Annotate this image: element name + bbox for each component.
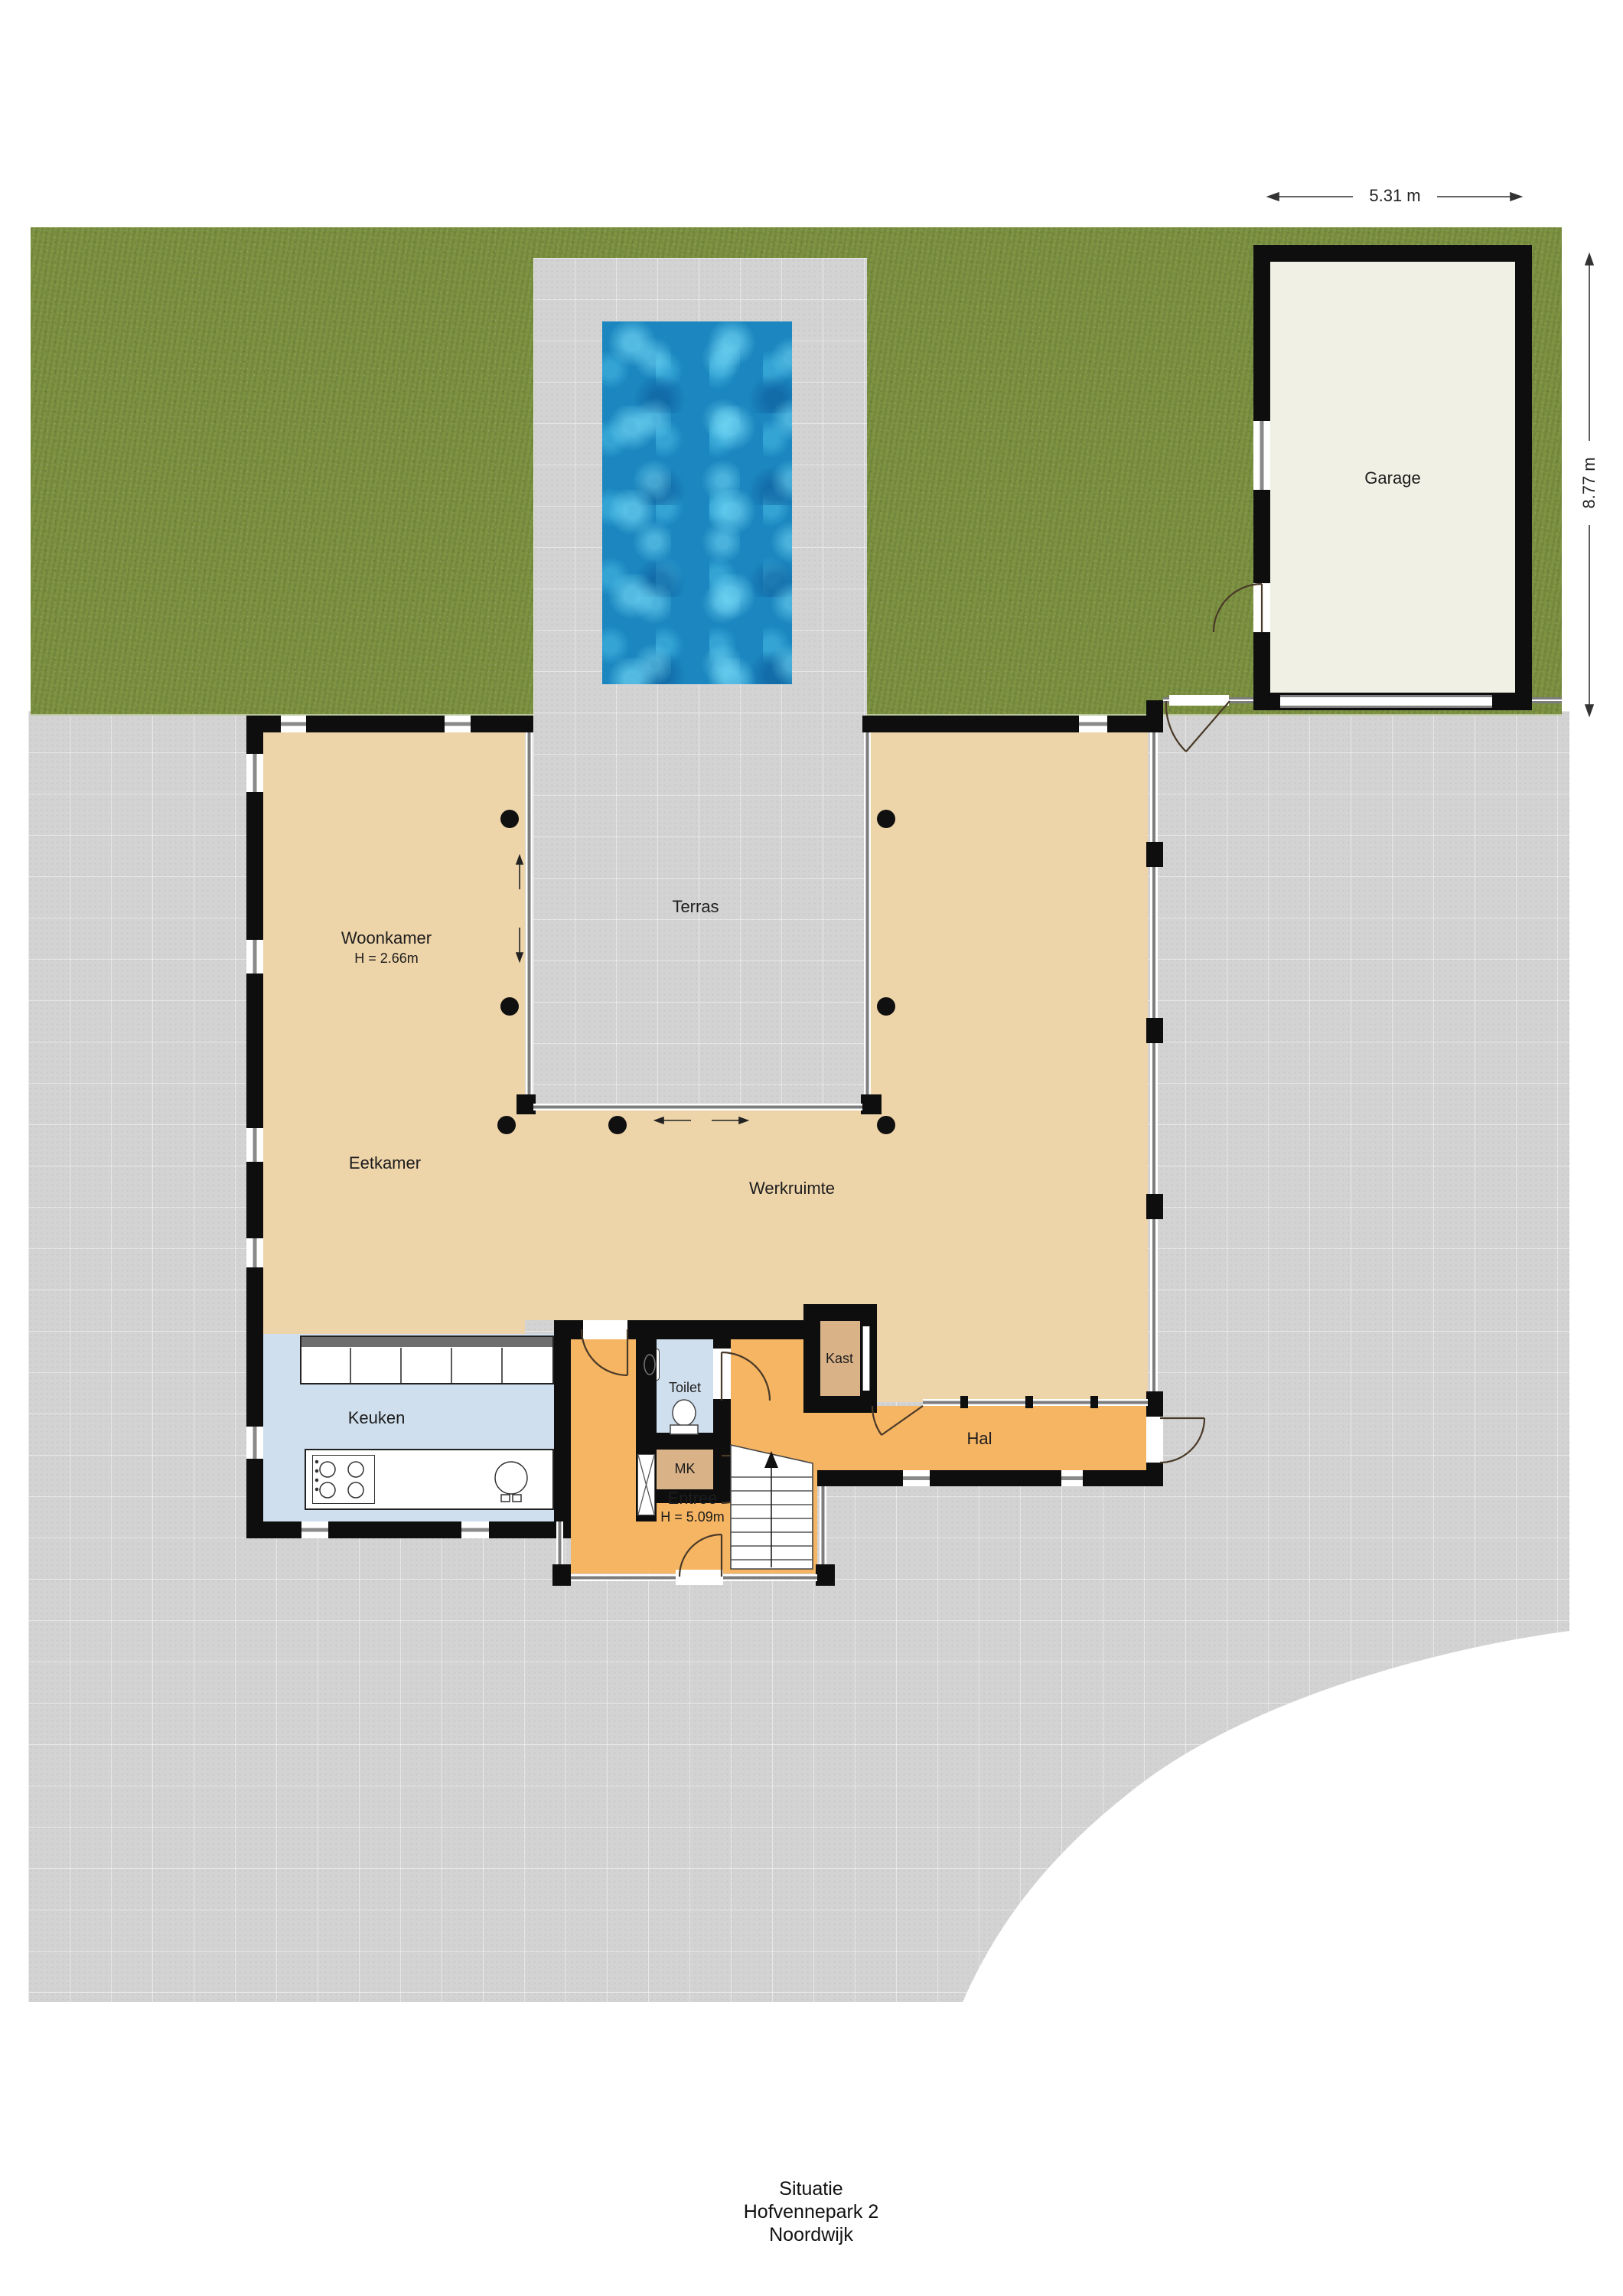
wall-kast-top	[803, 1304, 877, 1321]
post-right-1	[1146, 842, 1163, 867]
caption-address: Hofvennepark 2	[658, 2200, 964, 2223]
fence-gate-gap	[1169, 695, 1229, 706]
wall-top-right-wing	[862, 716, 1163, 732]
label-hal: Hal	[941, 1430, 1018, 1448]
window-left-2	[246, 940, 263, 974]
label-toilet: Toilet	[647, 1381, 723, 1396]
wall-bottom-kitchen	[246, 1521, 571, 1538]
label-keuken: Keuken	[300, 1409, 453, 1427]
window-left-4	[246, 1238, 263, 1267]
label-mk: MK	[662, 1462, 708, 1477]
label-garage: Garage	[1316, 469, 1469, 488]
dimension-garage-depth: 8.77 m	[1579, 441, 1599, 525]
glass-terras-right	[864, 732, 871, 1097]
label-terras: Terras	[619, 898, 772, 916]
kitchen-hob	[312, 1455, 375, 1504]
corner-top-right	[1146, 700, 1163, 732]
glass-entree-right	[820, 1486, 826, 1564]
glass-entree-left	[556, 1521, 563, 1566]
fence-garage-to-edge	[1532, 697, 1562, 703]
room-middle-open-space	[525, 1108, 869, 1320]
wall-bottom-hal	[817, 1470, 1163, 1486]
entree-top-door-gap	[583, 1320, 627, 1339]
wall-toilet-bottom	[657, 1433, 713, 1450]
label-woonkamer-height: H = 2.66m	[310, 951, 463, 967]
corner-entree-right	[816, 1564, 835, 1586]
floorplan-canvas: 5.31 m 8.77 m Woonkamer H = 2.66m Eetkam…	[0, 0, 1623, 2296]
hal-exterior-door-gap	[1146, 1417, 1163, 1463]
window-kitchen-1	[301, 1521, 328, 1538]
garage-door	[1280, 695, 1492, 708]
glass-wall-right	[1150, 732, 1158, 1406]
post-hal-2	[1025, 1396, 1033, 1408]
label-entree: Entree	[631, 1489, 754, 1508]
glass-terras-bottom	[533, 1104, 862, 1110]
window-top-right	[1079, 716, 1107, 732]
caption-title: Situatie	[658, 2177, 964, 2200]
post-terras-right	[861, 1094, 882, 1114]
label-entree-height: H = 5.09m	[631, 1509, 754, 1525]
post-right-2	[1146, 1018, 1163, 1043]
wall-kast-bottom	[803, 1396, 877, 1413]
window-left-3	[246, 1128, 263, 1162]
post-right-4	[1146, 1391, 1163, 1417]
caption-city: Noordwijk	[658, 2223, 964, 2246]
window-left-5	[246, 1427, 263, 1459]
garage-side-door-gap	[1253, 583, 1270, 632]
garage-wall-right	[1515, 262, 1532, 710]
label-werkruimte: Werkruimte	[715, 1179, 869, 1198]
dimension-garage-width: 5.31 m	[1353, 186, 1437, 206]
column-4	[877, 997, 895, 1016]
glass-werkruimte-hal	[923, 1399, 1148, 1406]
post-hal-1	[960, 1396, 968, 1408]
swimming-pool	[602, 321, 792, 684]
label-woonkamer: Woonkamer	[310, 929, 463, 947]
post-hal-3	[1090, 1396, 1098, 1408]
wall-entree-left	[554, 1339, 571, 1521]
room-werkruimte	[869, 732, 1148, 1402]
garage-window-left	[1253, 421, 1270, 490]
column-3	[877, 810, 895, 828]
column-6	[608, 1116, 627, 1134]
corner-entree-left	[552, 1564, 571, 1586]
wall-toilet-right	[713, 1320, 731, 1503]
column-7	[877, 1116, 895, 1134]
glass-terras-left	[526, 732, 533, 1097]
label-kast: Kast	[801, 1352, 878, 1367]
column-2	[500, 997, 519, 1016]
wall-left	[246, 716, 263, 1538]
window-hal-1	[903, 1470, 930, 1486]
window-kitchen-2	[461, 1521, 489, 1538]
kitchen-counter-top-band	[301, 1337, 552, 1347]
label-eetkamer: Eetkamer	[308, 1154, 461, 1172]
column-5	[497, 1116, 516, 1134]
garage-wall-top	[1253, 245, 1532, 262]
window-top-1	[281, 716, 306, 732]
window-left-1	[246, 754, 263, 792]
window-hal-2	[1061, 1470, 1083, 1486]
column-1	[500, 810, 519, 828]
post-right-3	[1146, 1194, 1163, 1219]
front-door-gap	[676, 1570, 723, 1585]
window-top-2	[445, 716, 471, 732]
